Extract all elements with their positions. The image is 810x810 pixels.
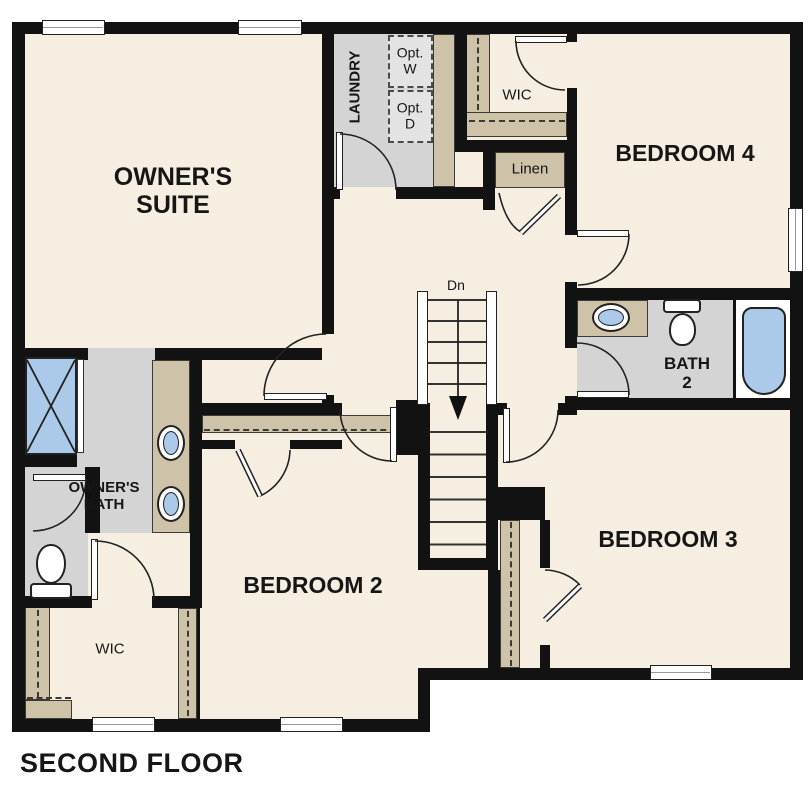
bedroom4-label: BEDROOM 4 [615, 141, 754, 167]
bedroom3-closet-door-leaf [545, 586, 580, 620]
stairs-down-arrow-icon [449, 300, 467, 420]
wic-upper-door-arc [516, 41, 565, 90]
bedroom2-closet-door-leaf [238, 450, 260, 496]
bath2-label: BATH2 [664, 354, 710, 392]
bedroom3-label: BEDROOM 3 [598, 527, 737, 553]
wic-upper-label: WIC [502, 88, 531, 105]
bath2-door-arc [577, 343, 629, 395]
linen-label: Linen [512, 162, 549, 179]
bedroom3-closet-door-arc [545, 570, 580, 585]
bedroom2-label: BEDROOM 2 [243, 573, 382, 599]
owners-suite-door-arc [264, 334, 326, 396]
owners-wic-label: WIC [95, 642, 124, 659]
owners-suite-label: OWNER'SSUITE [114, 163, 232, 219]
bedroom2-closet-door-arc [260, 450, 290, 496]
linen-door-leaf [521, 196, 559, 233]
page-title: SECOND FLOOR [20, 748, 244, 778]
owners-wic-door-arc [95, 541, 154, 600]
bedroom4-door-arc [578, 234, 629, 285]
shower-x-icon [27, 360, 75, 452]
linen-door-arc [499, 193, 521, 232]
optional-washer-label: Opt.W [397, 45, 423, 76]
bedroom2-door-arc [340, 409, 392, 461]
optional-dryer-label: Opt.D [397, 100, 423, 131]
owners-bath-label: OWNER'SBATH [68, 480, 139, 514]
floor-plan: OWNER'SSUITE LAUNDRY Opt.W Opt.D WIC Lin… [0, 0, 810, 810]
bedroom3-door-arc [506, 410, 558, 462]
stairs-dn-label: Dn [447, 278, 465, 294]
laundry-door-arc [340, 134, 396, 190]
laundry-label: LAUNDRY [348, 51, 365, 124]
